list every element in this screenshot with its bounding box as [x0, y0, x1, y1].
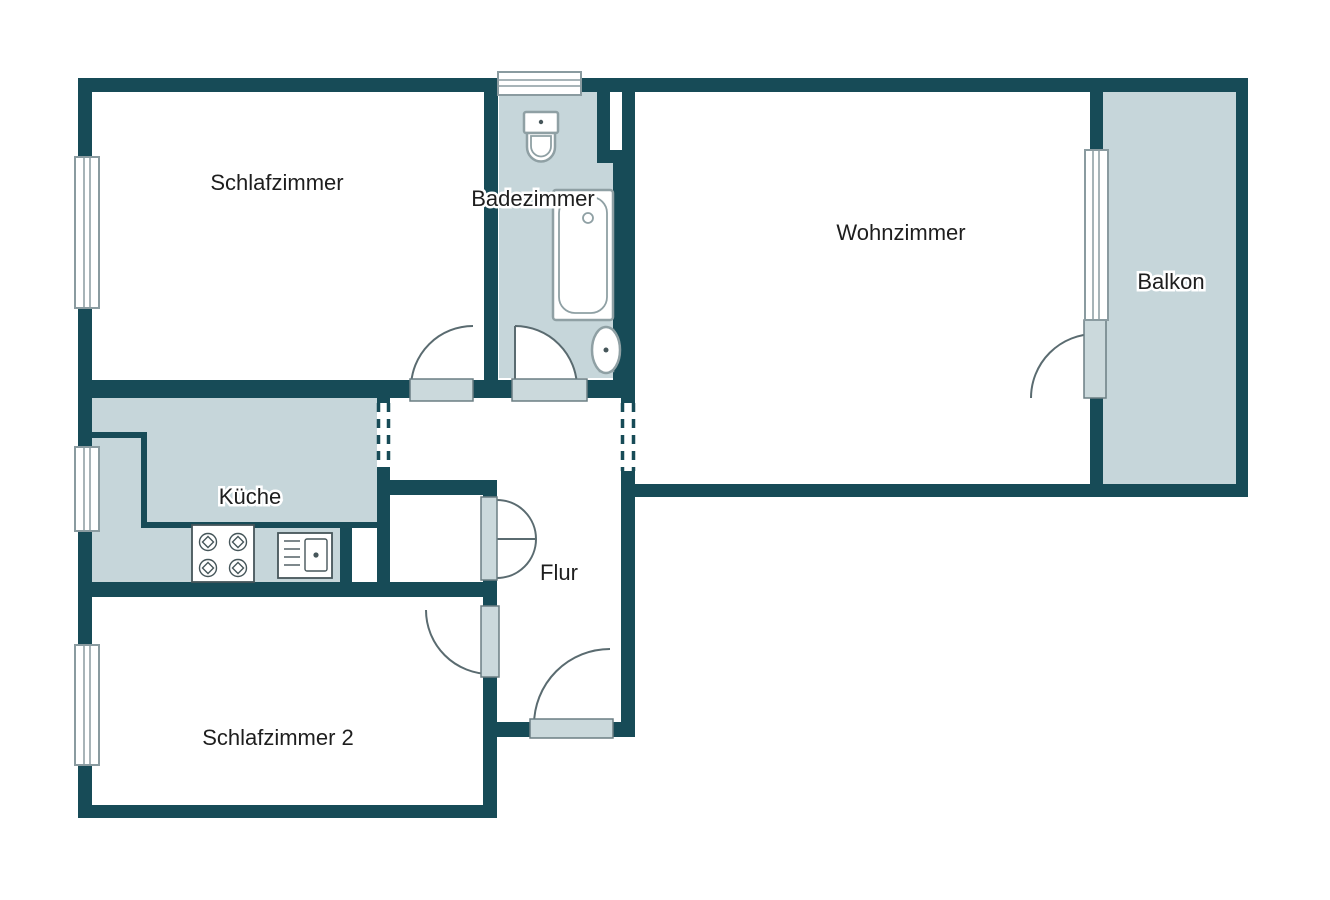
- wall-segment-closet-top: [377, 480, 497, 495]
- duct-shaft: [610, 92, 622, 150]
- closet-double-door: [481, 497, 536, 580]
- kitchen-passage: [377, 403, 390, 467]
- kitchen-sink-icon: [278, 533, 332, 578]
- entrance-door-sill: [530, 719, 613, 738]
- label-schlafzimmer: Schlafzimmer: [210, 170, 343, 195]
- kitchen-window: [75, 447, 99, 531]
- wall-segment-south-left: [78, 805, 497, 818]
- hall-living-passage: [621, 403, 635, 471]
- wall-segment-top: [78, 78, 1248, 92]
- wall-segment-south-right: [621, 484, 1248, 497]
- washbasin-icon: [592, 327, 620, 373]
- bathroom-window: [498, 72, 581, 95]
- wall-segment-kitchen-south: [78, 582, 497, 597]
- wall-segment-balcony-right: [1236, 78, 1248, 497]
- counter-edge: [141, 432, 147, 528]
- closet-door-leaves: [481, 497, 497, 580]
- counter-edge: [92, 432, 145, 438]
- counter-end-block: [340, 522, 352, 582]
- stove-icon: [192, 525, 254, 582]
- wall-segment-entry-right: [613, 722, 635, 737]
- wall-segment-entry-left: [483, 722, 530, 737]
- toilet-icon: [524, 112, 558, 162]
- counter-edge: [141, 522, 390, 528]
- wall-segment-bedroom2-right-c: [483, 737, 497, 805]
- wall-segment-closet-right: [483, 480, 497, 497]
- floor-plan: Schlafzimmer Badezimmer Wohnzimmer Balko…: [0, 0, 1330, 900]
- wall-segment-living-balcony-top: [1090, 92, 1103, 150]
- floor-plan-canvas: Schlafzimmer Badezimmer Wohnzimmer Balko…: [0, 0, 1330, 900]
- bedroom-window: [75, 157, 99, 308]
- label-wohnzimmer: Wohnzimmer: [836, 220, 965, 245]
- label-balkon: Balkon: [1137, 269, 1204, 294]
- bedroom2-door: [426, 606, 499, 677]
- balcony-window: [1085, 150, 1108, 320]
- open-passages: [377, 403, 635, 471]
- bedroom-door-sill: [410, 379, 473, 401]
- doors: [410, 320, 1106, 738]
- wall-segment-bedroom2-right-a: [483, 580, 497, 606]
- wall-segment-bedroom2-right-b: [483, 677, 497, 722]
- bedroom2-window: [75, 645, 99, 765]
- bedroom2-door-sill: [481, 606, 499, 677]
- balcony-door: [1031, 320, 1106, 398]
- bedroom-door: [410, 326, 473, 401]
- wall-segment-between-doors: [473, 380, 512, 398]
- wall-segment-hall-living-top: [621, 398, 635, 403]
- label-kueche: Küche: [219, 484, 281, 509]
- wall-segment-kitchen-right-top: [377, 398, 390, 403]
- bathroom-door-sill: [512, 379, 587, 401]
- kitchen-appliance-nook: [352, 528, 377, 582]
- wall-segment-hall-living: [621, 471, 635, 737]
- wall-segment-living-balcony-bottom: [1090, 398, 1103, 484]
- wall-segment-bedroom-bath: [484, 92, 498, 380]
- entrance-door: [530, 649, 613, 738]
- label-schlafzimmer2: Schlafzimmer 2: [202, 725, 354, 750]
- label-flur: Flur: [540, 560, 578, 585]
- balcony-door-sill: [1084, 320, 1106, 398]
- label-badezimmer: Badezimmer: [471, 186, 594, 211]
- wall-segment-bedroom-south: [92, 380, 410, 398]
- wall-segment-bath-south: [587, 380, 635, 398]
